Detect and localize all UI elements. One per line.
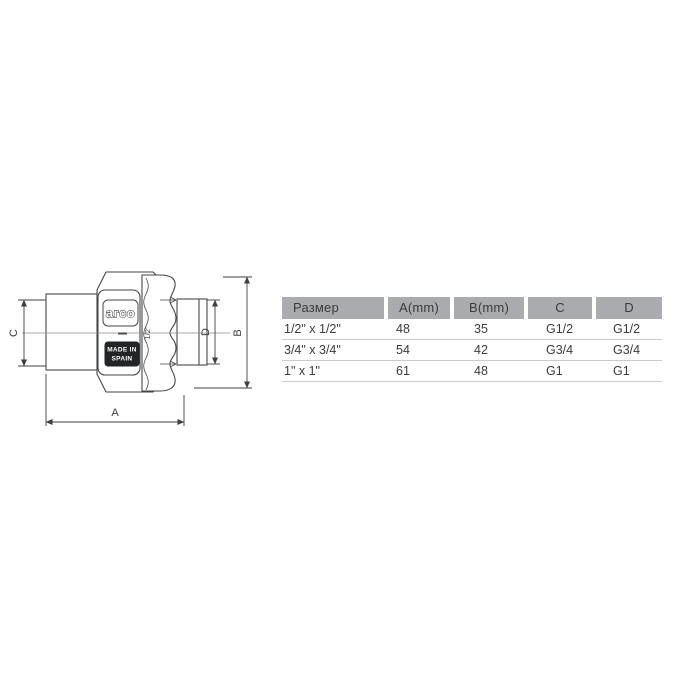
- dimension-label-b: B: [232, 329, 244, 336]
- brand-label: arco: [106, 306, 135, 321]
- column-header-size: Размер: [282, 297, 384, 319]
- table-row: 1/2" x 1/2" 48 35 G1/2 G1/2: [282, 319, 662, 340]
- column-header-b-mm: B(mm): [454, 297, 524, 319]
- cell-c: G1: [528, 361, 592, 381]
- cell-a: 61: [388, 361, 450, 381]
- cell-b: 42: [454, 340, 524, 360]
- valve-body: [46, 272, 207, 392]
- cell-size: 3/4" x 3/4": [282, 340, 384, 360]
- column-header-d: D: [596, 297, 662, 319]
- dimension-label-a: A: [111, 407, 119, 419]
- cell-d: G3/4: [596, 340, 662, 360]
- origin-label-line2: SPAIN: [112, 356, 133, 363]
- dimension-label-c: C: [8, 329, 20, 337]
- dimension-label-d: D: [200, 328, 212, 336]
- dimensions-table: Размер A(mm) B(mm) C D 1/2" x 1/2" 48 35…: [282, 297, 662, 382]
- table-header-row: Размер A(mm) B(mm) C D: [282, 297, 662, 319]
- cell-b: 48: [454, 361, 524, 381]
- cell-b: 35: [454, 319, 524, 339]
- cell-size: 1" x 1": [282, 361, 384, 381]
- origin-label-line1: MADE IN: [107, 347, 137, 354]
- cell-d: G1/2: [596, 319, 662, 339]
- left-pipe-stub: [46, 294, 100, 370]
- cell-c: G1/2: [528, 319, 592, 339]
- cell-d: G1: [596, 361, 662, 381]
- cell-size: 1/2" x 1/2": [282, 319, 384, 339]
- table-row: 1" x 1" 61 48 G1 G1: [282, 361, 662, 382]
- table-row: 3/4" x 3/4" 54 42 G3/4 G3/4: [282, 340, 662, 361]
- column-header-a-mm: A(mm): [388, 297, 450, 319]
- column-header-c: C: [528, 297, 592, 319]
- origin-plate: MADE IN SPAIN: [105, 342, 139, 366]
- cell-c: G3/4: [528, 340, 592, 360]
- cell-a: 48: [388, 319, 450, 339]
- product-spec-sheet: arco MADE IN SPAIN 1/2": [0, 0, 700, 700]
- valve-drawing-svg: arco MADE IN SPAIN 1/2": [8, 258, 264, 434]
- brand-plate: arco: [103, 300, 138, 326]
- valve-technical-drawing: arco MADE IN SPAIN 1/2": [8, 258, 264, 434]
- cell-a: 54: [388, 340, 450, 360]
